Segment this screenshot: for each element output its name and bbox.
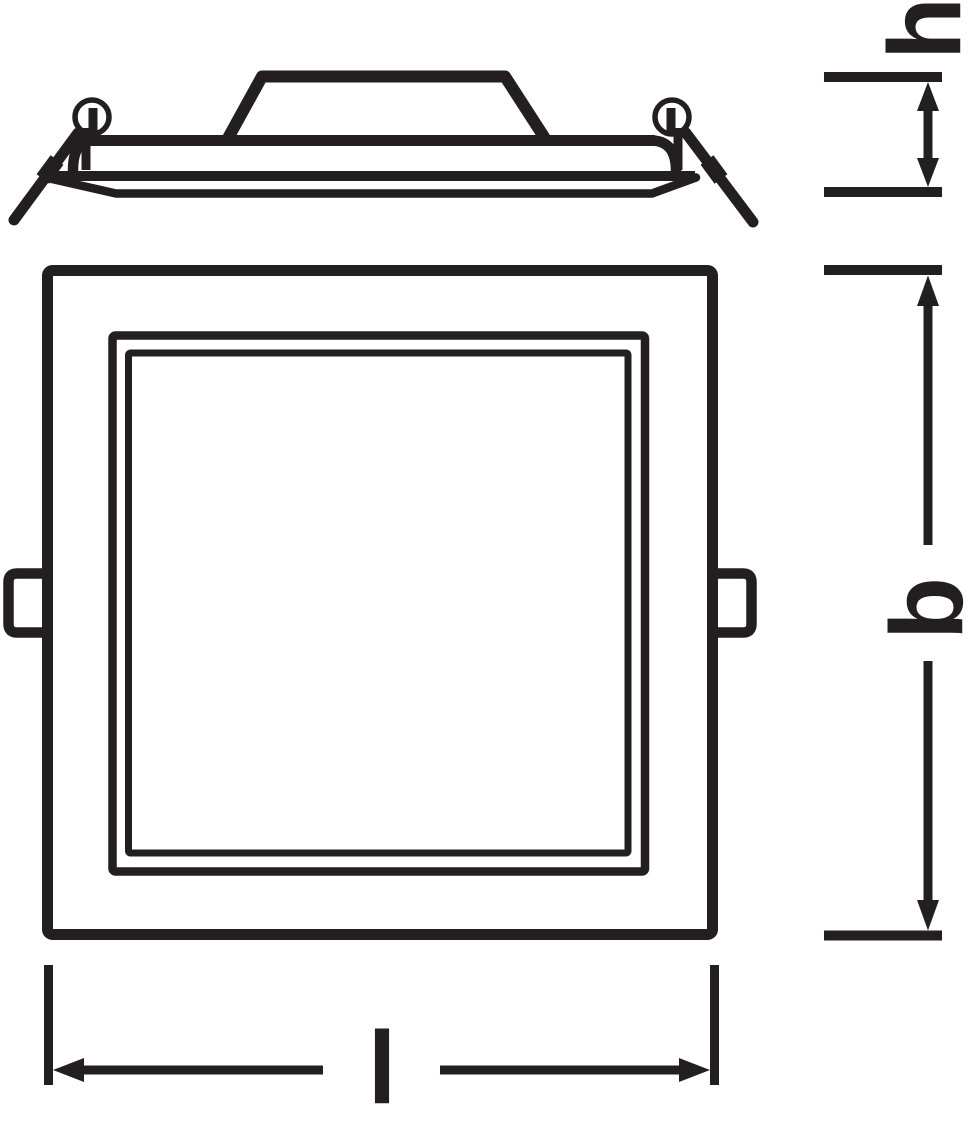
luminaire-dimension-drawing: h b l xyxy=(0,0,979,1125)
dim-l-label: l xyxy=(368,1010,397,1125)
side-view xyxy=(14,77,753,223)
dimension-h: h xyxy=(824,0,979,192)
dim-h-label: h xyxy=(867,0,979,60)
spring-pad-right xyxy=(707,160,721,179)
mounting-tab-left xyxy=(9,574,48,633)
dimension-drawing-canvas: h b l xyxy=(0,0,979,1125)
dimension-l: l xyxy=(49,965,715,1125)
mounting-tab-right xyxy=(713,574,752,633)
dim-b-label: b xyxy=(869,577,979,640)
dim-l-arrowhead-left xyxy=(53,1058,84,1082)
dim-b-arrowhead-up xyxy=(917,276,939,307)
spring-clip-left xyxy=(14,100,109,220)
frame-outer xyxy=(48,271,713,935)
spring-clip-right xyxy=(655,100,753,222)
driver-housing xyxy=(227,77,546,141)
panel-right-wall xyxy=(653,141,676,172)
front-view xyxy=(9,271,752,935)
spring-pad-left xyxy=(43,160,57,179)
frame-middle xyxy=(113,336,646,872)
dim-h-arrowhead-up xyxy=(917,82,939,111)
dimension-b: b xyxy=(824,270,979,936)
dim-h-arrowhead-down xyxy=(917,158,939,187)
dim-l-arrowhead-right xyxy=(679,1058,710,1082)
dim-b-arrowhead-down xyxy=(917,900,939,931)
light-surface-edge xyxy=(129,353,629,853)
